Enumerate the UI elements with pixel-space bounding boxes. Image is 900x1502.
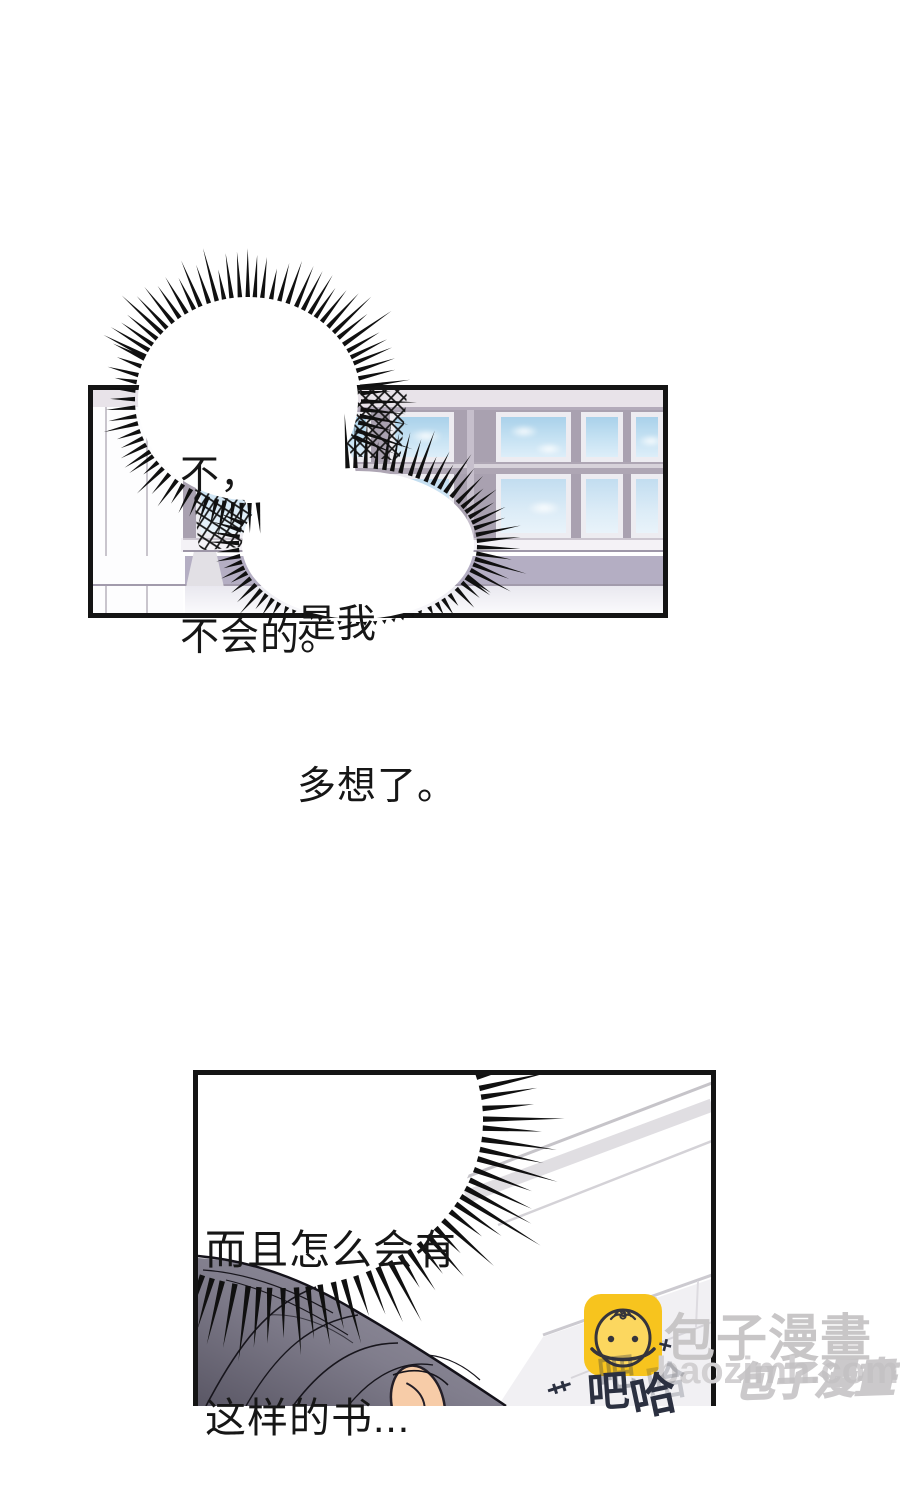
- window-pane: [631, 474, 663, 538]
- left-wall-lower: [93, 556, 185, 584]
- window-pane: [631, 412, 663, 462]
- speech-bubble-2-text: 是我 多想了。: [297, 490, 457, 868]
- shelf-top: [498, 1279, 711, 1406]
- watermark-overlay-text: 包子漫畫: [731, 1345, 900, 1409]
- mullion-highlight: [467, 410, 474, 538]
- window-pane: [581, 412, 623, 462]
- window-pane: [496, 474, 571, 538]
- window-pane: [338, 412, 371, 462]
- window-pane: [581, 474, 623, 538]
- speech-bubble-3-text: 而且怎么会有 这样的书...: [205, 1110, 457, 1502]
- window-pane: [496, 412, 571, 462]
- window-pane: [390, 412, 454, 462]
- ceiling-line: [456, 1083, 711, 1181]
- comic-page: { "bubbles": { "b1": ["不，", "不会的。"], "b2…: [0, 0, 900, 1406]
